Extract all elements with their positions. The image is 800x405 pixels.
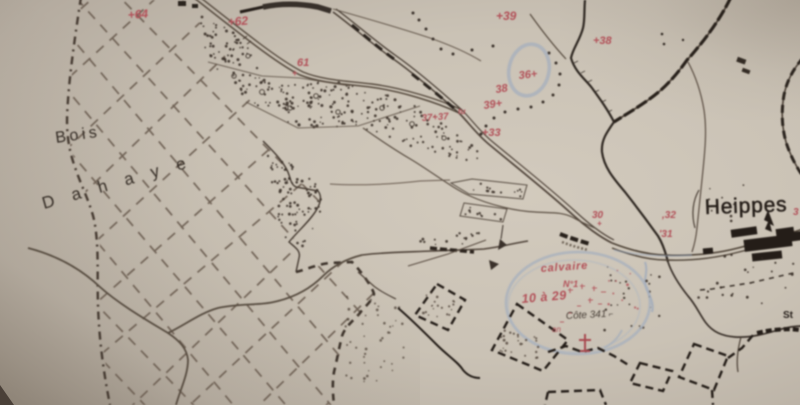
svg-text:+: +: [292, 68, 298, 78]
svg-text:61: 61: [297, 57, 309, 69]
svg-text:tu: tu: [458, 107, 466, 116]
svg-text:+33: +33: [482, 127, 501, 139]
svg-text:,32: ,32: [661, 210, 676, 221]
svg-text:'31: '31: [659, 229, 673, 240]
svg-text:37+37: 37+37: [421, 111, 449, 124]
svg-text:+62: +62: [227, 14, 249, 29]
svg-text:Heippes: Heippes: [704, 193, 787, 219]
svg-text:an: an: [552, 325, 561, 334]
svg-text:+: +: [597, 219, 602, 228]
svg-text:+39: +39: [496, 9, 517, 23]
svg-text:+64: +64: [127, 7, 149, 22]
svg-text:+38: +38: [593, 35, 613, 47]
svg-text:36+: 36+: [518, 68, 538, 82]
svg-text:3: 3: [793, 207, 799, 218]
svg-text:St: St: [783, 310, 794, 321]
